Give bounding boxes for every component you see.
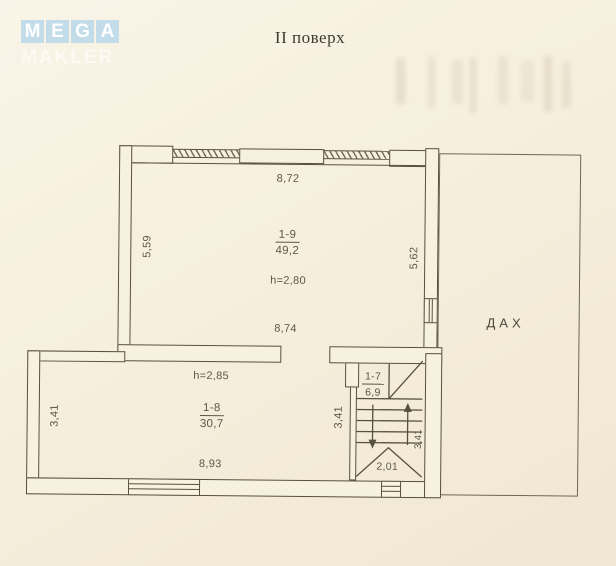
room-area-1-7: 6,9 — [362, 385, 384, 399]
wall-bottom — [26, 477, 441, 498]
wall-middle-left — [117, 344, 281, 363]
stair-break-diagonal — [389, 361, 423, 399]
window-bottom-right — [381, 481, 401, 498]
dim-bottom-1-8: 8,93 — [199, 458, 222, 470]
stairs-up-arrowhead — [404, 403, 412, 412]
room-number-1-8: 1-8 — [200, 402, 224, 416]
dim-right-1-9: 5,62 — [408, 247, 420, 270]
wall-top-pier — [239, 148, 324, 164]
stair-tread — [357, 409, 422, 410]
dim-side-1-7: 3,41 — [413, 429, 424, 449]
window-top-right — [323, 150, 390, 160]
dim-bottom-1-9: 8,74 — [274, 323, 297, 335]
wall-stair-stub — [345, 362, 359, 387]
room-height-1-8: h=2,85 — [193, 370, 229, 382]
wall-left-lower — [26, 350, 40, 494]
dim-right-1-8: 3,41 — [333, 406, 345, 429]
wall-left-upper — [117, 145, 132, 355]
dim-bottom-1-7: 2,01 — [376, 461, 398, 473]
dim-left-1-9: 5,59 — [141, 235, 153, 258]
room-area-1-9: 49,2 — [275, 243, 299, 257]
window-bottom-left — [128, 478, 200, 496]
wall-top-inner-line — [131, 162, 426, 166]
window-top-left — [172, 149, 240, 159]
room-number-1-7: 1-7 — [362, 371, 384, 385]
dim-left-1-8: 3,41 — [49, 404, 61, 427]
wall-lower-top-left — [27, 350, 125, 362]
floor-plan: ДАХ — [0, 0, 616, 566]
stair-tread — [357, 420, 422, 421]
wall-right-lower — [424, 353, 442, 498]
room-label-1-8: 1-8 30,7 — [200, 398, 224, 430]
window-right-wall — [424, 298, 438, 323]
room-number-1-9: 1-9 — [276, 229, 300, 243]
stairs-down-arrowhead — [368, 440, 376, 449]
room-label-1-9: 1-9 49,2 — [275, 225, 299, 257]
room-label-1-7: 1-7 6,9 — [362, 367, 384, 399]
dim-top-1-9: 8,72 — [277, 173, 300, 185]
roof-label: ДАХ — [486, 315, 524, 330]
floor-plan-photo: M E G A MAKLER II поверх ДАХ — [0, 0, 616, 566]
room-height-1-9: h=2,80 — [270, 275, 306, 287]
room-area-1-8: 30,7 — [200, 416, 224, 430]
